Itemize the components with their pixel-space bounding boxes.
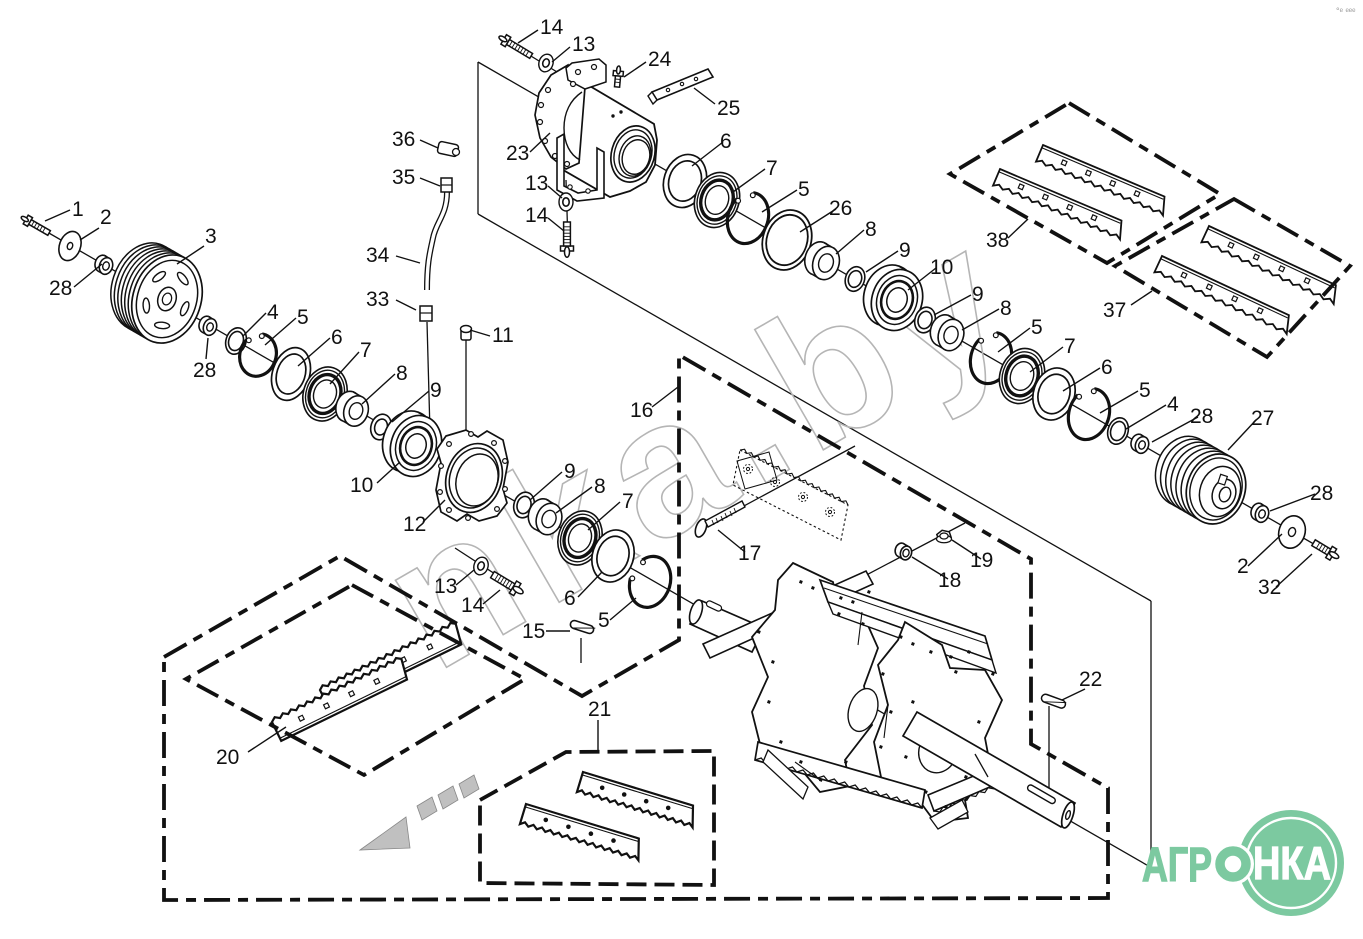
svg-text:37: 37 [1103,299,1126,322]
svg-text:5: 5 [1031,316,1043,339]
svg-text:24: 24 [648,48,672,71]
svg-text:17: 17 [738,542,761,565]
svg-text:1: 1 [72,198,84,221]
svg-text:14: 14 [461,594,485,617]
svg-text:10: 10 [930,256,953,279]
svg-text:15: 15 [522,620,545,643]
svg-text:9: 9 [430,379,442,402]
svg-text:14: 14 [540,16,564,39]
svg-text:2: 2 [1237,555,1249,578]
svg-text:10: 10 [350,474,373,497]
svg-text:7: 7 [1064,335,1076,358]
svg-text:9: 9 [972,283,984,306]
svg-text:9: 9 [899,239,911,262]
svg-text:35: 35 [392,166,415,189]
svg-text:7: 7 [766,157,778,180]
svg-text:28: 28 [193,359,216,382]
svg-text:8: 8 [1000,297,1012,320]
svg-text:9: 9 [564,460,576,483]
svg-text:8: 8 [396,362,408,385]
svg-text:4: 4 [267,301,279,324]
svg-text:28: 28 [49,277,72,300]
svg-text:14: 14 [525,204,549,227]
svg-text:23: 23 [506,142,529,165]
svg-text:НКА: НКА [1253,837,1331,889]
svg-text:6: 6 [564,587,576,610]
svg-text:5: 5 [798,178,810,201]
svg-text:°ᵉ ᵉᵉᵉ: °ᵉ ᵉᵉᵉ [1336,6,1356,16]
svg-text:13: 13 [525,172,548,195]
svg-text:11: 11 [492,324,514,347]
svg-text:АГР: АГР [1142,839,1212,892]
svg-text:25: 25 [717,97,740,120]
svg-text:32: 32 [1258,576,1281,599]
svg-text:5: 5 [297,306,309,329]
svg-text:28: 28 [1310,482,1333,505]
svg-text:26: 26 [829,197,852,220]
svg-text:33: 33 [366,288,389,311]
svg-text:34: 34 [366,244,390,267]
svg-text:6: 6 [720,130,732,153]
svg-text:38: 38 [986,229,1009,252]
svg-text:18: 18 [938,569,961,592]
svg-text:22: 22 [1079,668,1102,691]
svg-text:6: 6 [331,326,343,349]
svg-text:20: 20 [216,746,239,769]
svg-text:3: 3 [205,225,217,248]
svg-text:21: 21 [588,698,611,721]
svg-text:7: 7 [360,339,372,362]
svg-text:2: 2 [100,206,112,229]
svg-text:19: 19 [970,549,993,572]
svg-text:12: 12 [403,513,426,536]
svg-text:16: 16 [630,399,653,422]
svg-text:27: 27 [1251,407,1274,430]
svg-text:4: 4 [1167,393,1179,416]
svg-text:13: 13 [572,33,595,56]
svg-text:7: 7 [622,490,634,513]
svg-text:13: 13 [434,575,457,598]
svg-text:6: 6 [1101,356,1113,379]
svg-text:5: 5 [598,609,610,632]
svg-text:8: 8 [865,218,877,241]
svg-text:8: 8 [594,475,606,498]
svg-text:5: 5 [1139,379,1151,402]
svg-text:36: 36 [392,128,415,151]
svg-text:28: 28 [1190,405,1213,428]
